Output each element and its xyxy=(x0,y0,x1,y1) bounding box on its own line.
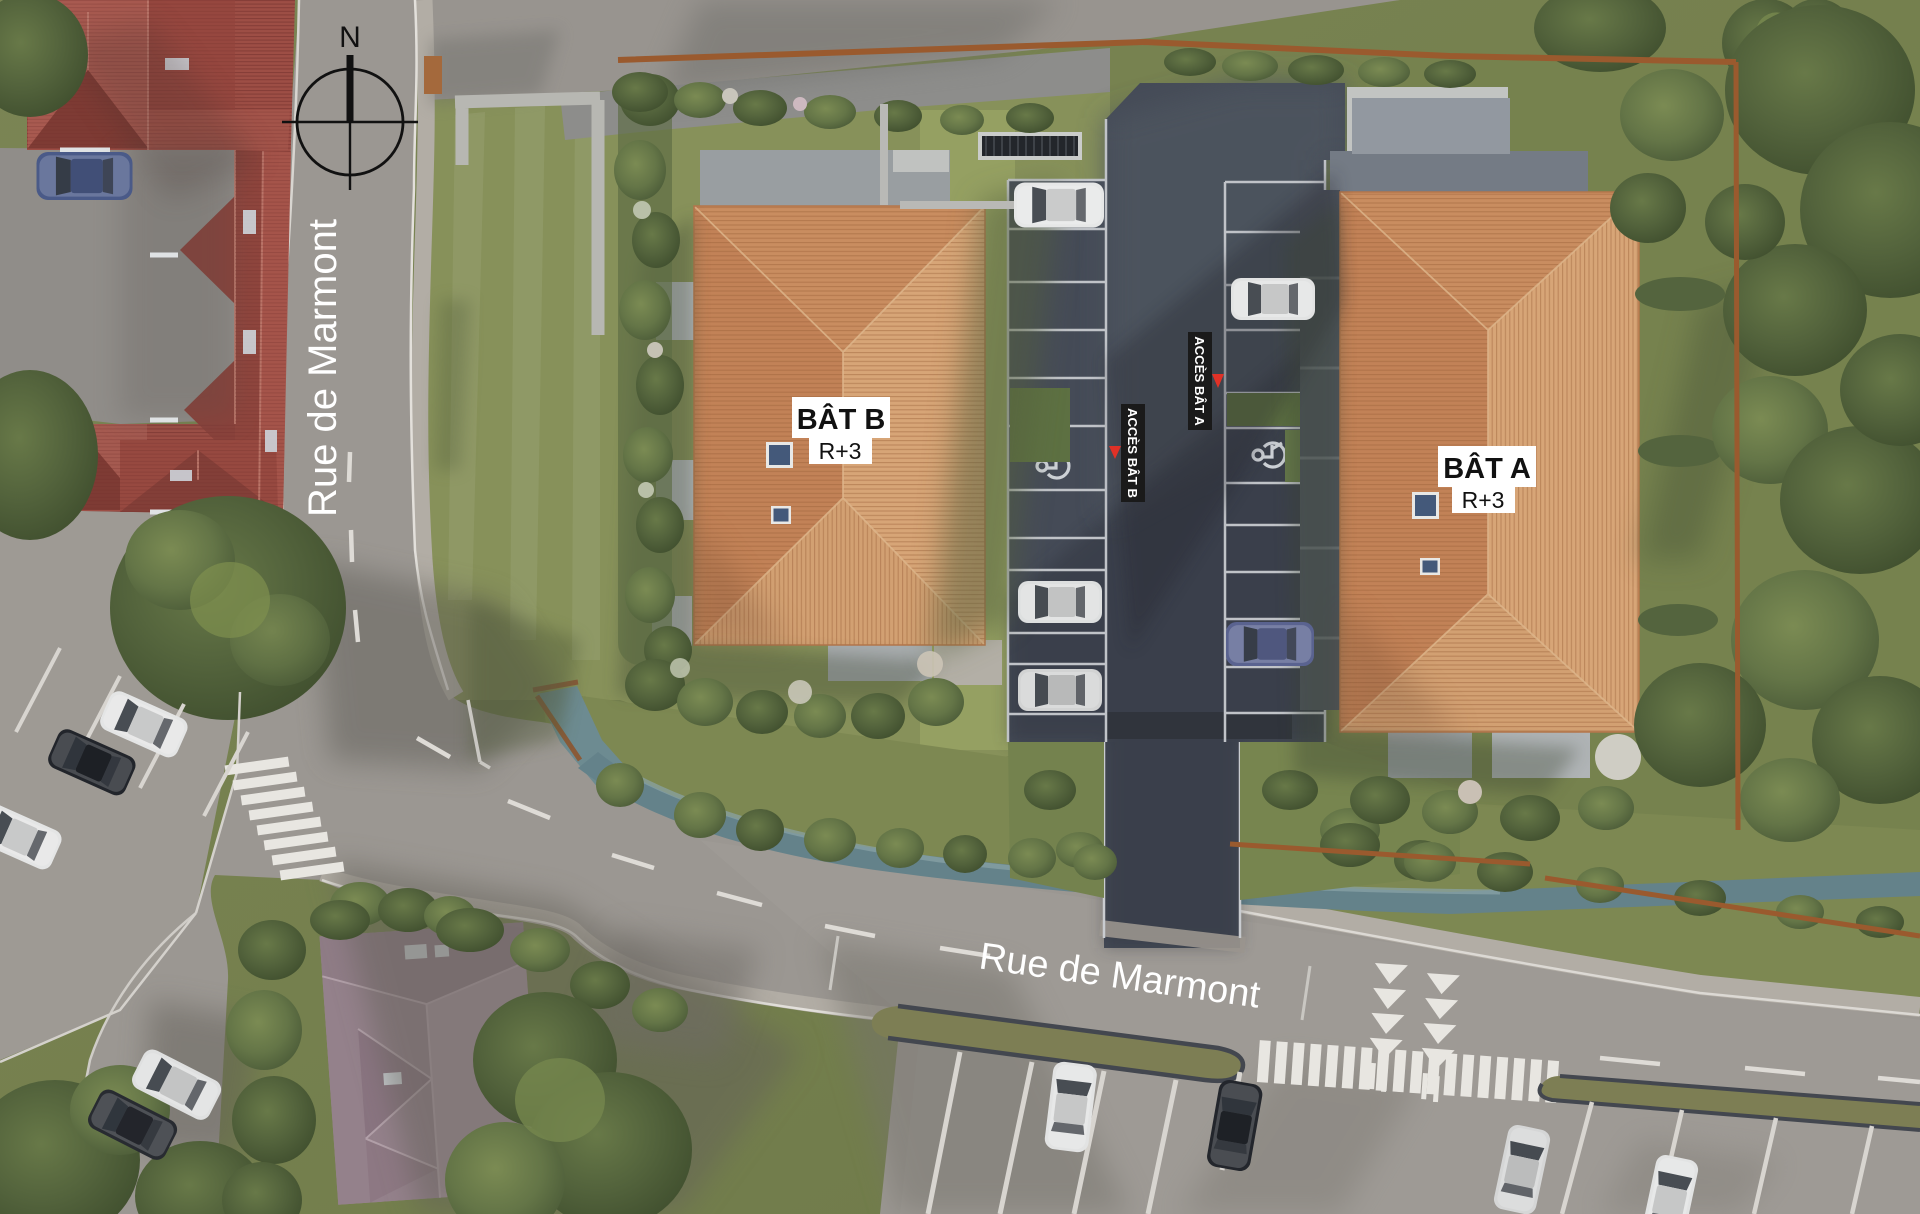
svg-text:R+3: R+3 xyxy=(1462,487,1505,513)
svg-text:R+3: R+3 xyxy=(819,438,862,464)
svg-text:BÂT B: BÂT B xyxy=(797,402,886,436)
svg-text:N: N xyxy=(339,21,361,54)
svg-text:ACCÈS BÂT A: ACCÈS BÂT A xyxy=(1192,336,1207,426)
svg-text:ACCÈS BÂT B: ACCÈS BÂT B xyxy=(1125,408,1140,498)
svg-text:Rue de Marmont: Rue de Marmont xyxy=(301,219,345,517)
svg-text:BÂT A: BÂT A xyxy=(1443,451,1531,485)
